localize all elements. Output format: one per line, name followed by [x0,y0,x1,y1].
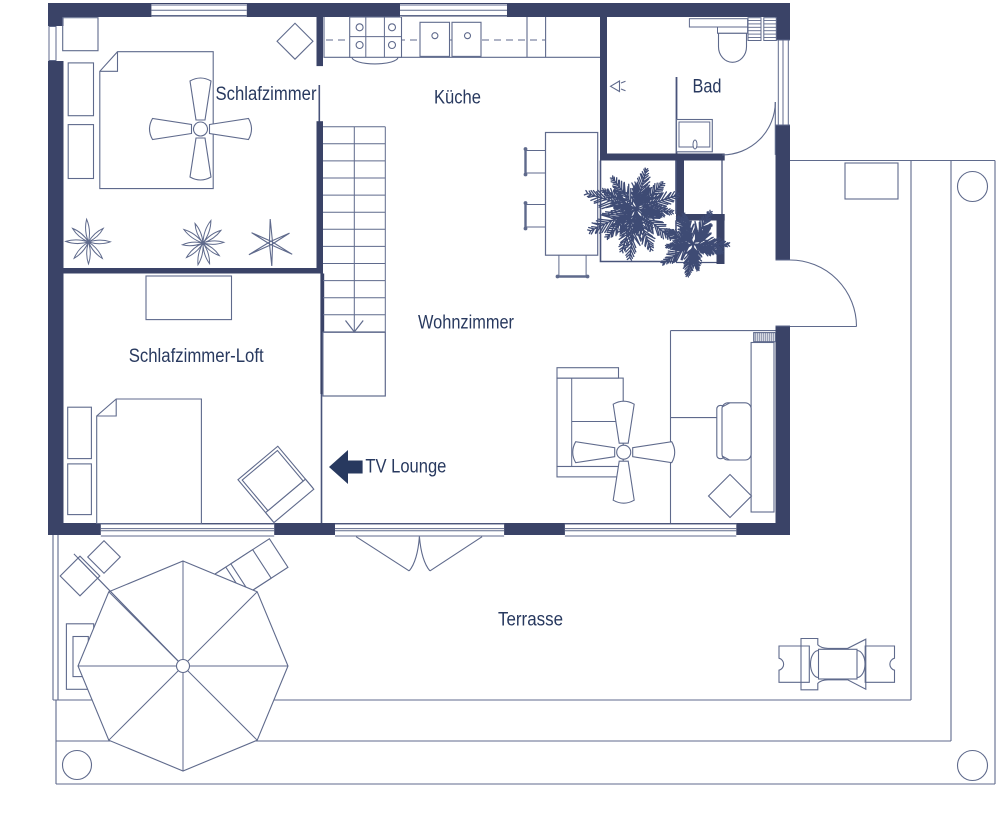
svg-text:Terrasse: Terrasse [498,610,563,631]
svg-text:Schlafzimmer-Loft: Schlafzimmer-Loft [129,346,265,367]
svg-text:Schlafzimmer: Schlafzimmer [216,84,318,105]
svg-text:Wohnzimmer: Wohnzimmer [418,313,515,334]
svg-text:Küche: Küche [434,88,481,109]
svg-text:Bad: Bad [693,77,722,98]
svg-text:TV Lounge: TV Lounge [365,457,446,478]
